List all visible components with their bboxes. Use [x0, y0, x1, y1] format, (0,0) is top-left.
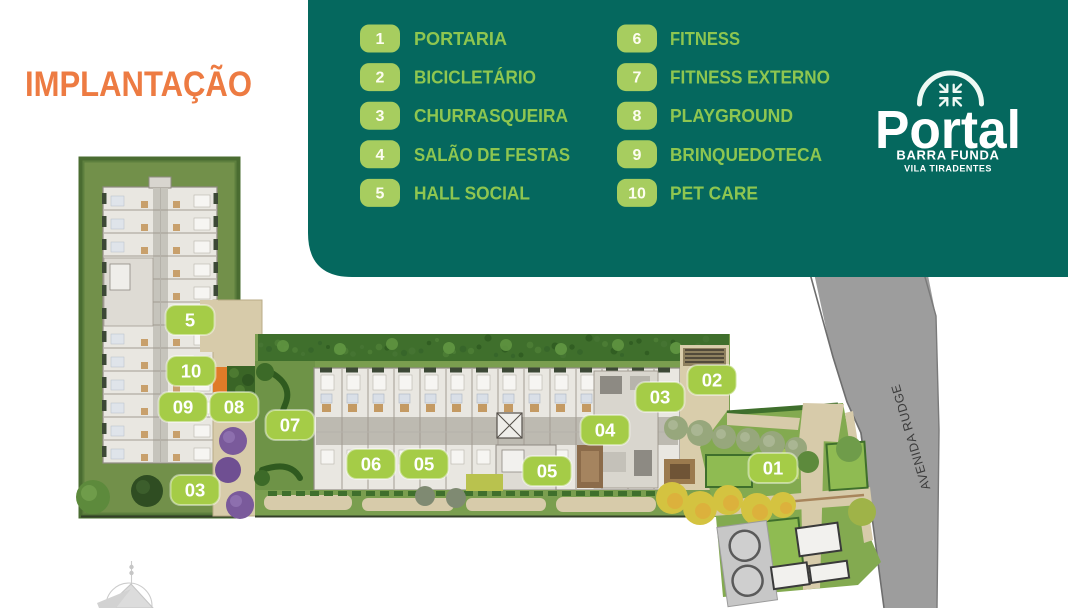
svg-text:01: 01: [763, 458, 784, 479]
svg-text:02: 02: [702, 370, 723, 391]
svg-text:10: 10: [628, 185, 646, 202]
svg-text:HALL SOCIAL: HALL SOCIAL: [414, 182, 530, 203]
svg-text:09: 09: [173, 397, 194, 418]
svg-text:4: 4: [376, 147, 385, 164]
svg-text:BARRA FUNDA: BARRA FUNDA: [896, 148, 999, 163]
svg-text:IMPLANTAÇÃO: IMPLANTAÇÃO: [25, 65, 252, 104]
svg-text:BRINQUEDOTECA: BRINQUEDOTECA: [670, 144, 822, 165]
svg-text:PET CARE: PET CARE: [670, 182, 758, 203]
svg-text:05: 05: [414, 454, 435, 475]
svg-text:CHURRASQUEIRA: CHURRASQUEIRA: [414, 105, 568, 126]
svg-text:PORTARIA: PORTARIA: [414, 28, 507, 49]
svg-text:5: 5: [185, 310, 195, 331]
svg-text:3: 3: [376, 108, 385, 125]
svg-text:04: 04: [595, 420, 616, 441]
svg-text:10: 10: [181, 361, 202, 382]
svg-text:07: 07: [280, 415, 301, 436]
svg-text:03: 03: [185, 480, 206, 501]
svg-text:VILA TIRADENTES: VILA TIRADENTES: [904, 164, 992, 174]
svg-text:6: 6: [633, 31, 642, 48]
svg-text:PLAYGROUND: PLAYGROUND: [670, 105, 793, 126]
svg-text:FITNESS EXTERNO: FITNESS EXTERNO: [670, 67, 830, 88]
svg-text:9: 9: [633, 147, 642, 164]
svg-text:7: 7: [633, 70, 642, 87]
svg-text:5: 5: [376, 185, 385, 202]
svg-text:05: 05: [537, 461, 558, 482]
svg-text:2: 2: [376, 70, 385, 87]
svg-text:BICICLETÁRIO: BICICLETÁRIO: [414, 67, 536, 88]
svg-text:8: 8: [633, 108, 642, 125]
svg-text:03: 03: [650, 387, 671, 408]
svg-text:06: 06: [361, 454, 382, 475]
svg-text:1: 1: [376, 31, 385, 48]
svg-text:FITNESS: FITNESS: [670, 28, 740, 49]
svg-text:SALÃO DE FESTAS: SALÃO DE FESTAS: [414, 144, 570, 165]
svg-text:08: 08: [224, 397, 245, 418]
